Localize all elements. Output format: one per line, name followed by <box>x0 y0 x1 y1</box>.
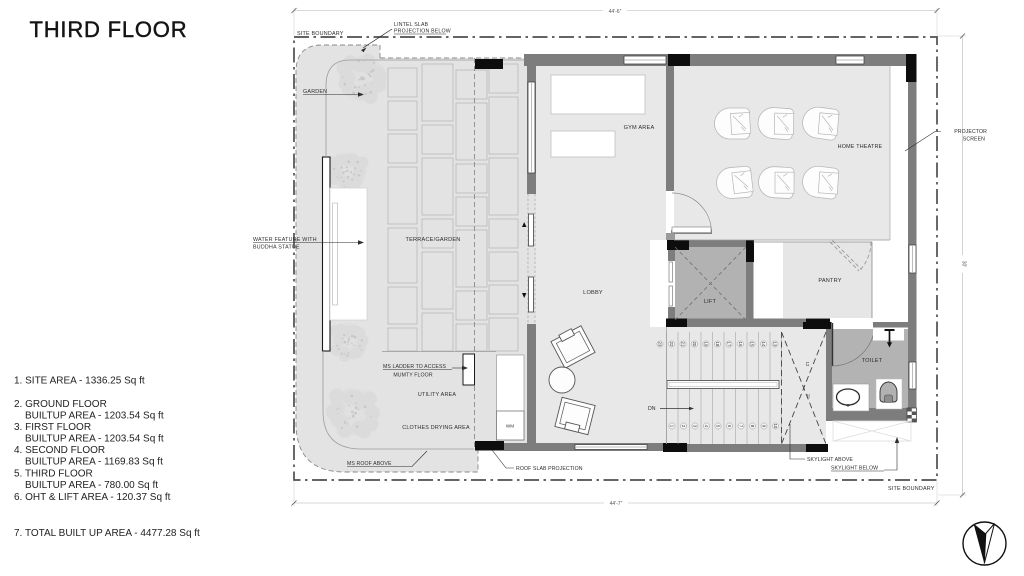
svg-text:21: 21 <box>681 342 686 347</box>
svg-text:HOME THEATRE: HOME THEATRE <box>838 144 883 150</box>
svg-text:LINTEL SLAB: LINTEL SLAB <box>394 22 429 28</box>
svg-text:44′-6″: 44′-6″ <box>609 9 622 15</box>
svg-text:CLOTHES DRYING AREA: CLOTHES DRYING AREA <box>402 425 470 431</box>
svg-text:12: 12 <box>805 362 810 367</box>
svg-text:PROJECTOR: PROJECTOR <box>954 129 987 135</box>
svg-text:BUDDHA STATUE: BUDDHA STATUE <box>253 245 300 251</box>
svg-text:6. OHT & LIFT AREA - 120.37 Sq: 6. OHT & LIFT AREA - 120.37 Sq ft <box>14 492 171 503</box>
svg-text:ROOF SLAB PROJECTION: ROOF SLAB PROJECTION <box>516 466 583 472</box>
svg-text:20: 20 <box>692 342 697 347</box>
svg-text:17: 17 <box>727 342 732 347</box>
svg-text:11: 11 <box>806 394 811 399</box>
svg-text:13: 13 <box>773 342 778 347</box>
svg-text:SCREEN: SCREEN <box>963 137 985 143</box>
svg-text:MUMTY FLOOR: MUMTY FLOOR <box>393 373 432 379</box>
svg-text:SKYLIGHT BELOW: SKYLIGHT BELOW <box>831 466 878 472</box>
svg-text:15: 15 <box>750 342 755 347</box>
svg-text:WM: WM <box>506 424 514 429</box>
svg-text:SITE BOUNDARY: SITE BOUNDARY <box>888 486 935 492</box>
svg-text:4. SECOND FLOOR: 4. SECOND FLOOR <box>14 445 105 456</box>
svg-text:TOILET: TOILET <box>862 358 883 364</box>
svg-text:19: 19 <box>704 342 709 347</box>
svg-text:MS LADDER TO ACCESS: MS LADDER TO ACCESS <box>383 364 447 370</box>
svg-text:THIRD FLOOR: THIRD FLOOR <box>30 17 188 42</box>
svg-text:1. SITE AREA - 1336.25 Sq ft: 1. SITE AREA - 1336.25 Sq ft <box>14 376 145 387</box>
svg-text:LOBBY: LOBBY <box>583 290 603 296</box>
svg-text:BUILTUP AREA - 1203.54 Sq ft: BUILTUP AREA - 1203.54 Sq ft <box>25 434 164 445</box>
svg-text:SITE BOUNDARY: SITE BOUNDARY <box>297 31 344 37</box>
svg-text:TERRACE/GARDEN: TERRACE/GARDEN <box>405 237 460 243</box>
svg-text:LIFT: LIFT <box>704 299 717 305</box>
svg-text:16: 16 <box>738 342 743 347</box>
svg-text:UTILITY AREA: UTILITY AREA <box>418 392 456 398</box>
svg-text:SKYLIGHT ABOVE: SKYLIGHT ABOVE <box>807 457 853 463</box>
svg-text:WATER FEATURE WITH: WATER FEATURE WITH <box>253 237 317 243</box>
svg-text:23: 23 <box>658 342 663 347</box>
svg-text:MS ROOF ABOVE: MS ROOF ABOVE <box>347 461 392 467</box>
svg-text:3. FIRST FLOOR: 3. FIRST FLOOR <box>14 422 91 433</box>
svg-text:30′: 30′ <box>961 261 967 268</box>
svg-text:PROJECTION BELOW: PROJECTION BELOW <box>394 29 451 35</box>
svg-text:5. THIRD FLOOR: 5. THIRD FLOOR <box>14 469 93 480</box>
svg-text:2. GROUND FLOOR: 2. GROUND FLOOR <box>14 399 107 410</box>
svg-text:7. TOTAL BUILT UP AREA - 4477: 7. TOTAL BUILT UP AREA - 4477.28 Sq ft <box>14 528 200 539</box>
svg-text:PANTRY: PANTRY <box>818 278 841 284</box>
svg-text:DN: DN <box>648 406 656 412</box>
svg-text:10: 10 <box>773 424 778 429</box>
svg-text:14: 14 <box>761 342 766 347</box>
svg-text:44′-7″: 44′-7″ <box>610 501 623 507</box>
svg-text:GYM AREA: GYM AREA <box>624 125 655 131</box>
svg-text:BUILTUP AREA - 1203.54 Sq ft: BUILTUP AREA - 1203.54 Sq ft <box>25 411 164 422</box>
svg-text:18: 18 <box>715 342 720 347</box>
svg-text:GARDEN: GARDEN <box>303 89 327 95</box>
svg-text:BUILTUP AREA - 780.00 Sq ft: BUILTUP AREA - 780.00 Sq ft <box>25 480 158 491</box>
svg-text:22: 22 <box>669 342 674 347</box>
svg-text:BUILTUP AREA - 1169.83 Sq ft: BUILTUP AREA - 1169.83 Sq ft <box>25 457 163 468</box>
